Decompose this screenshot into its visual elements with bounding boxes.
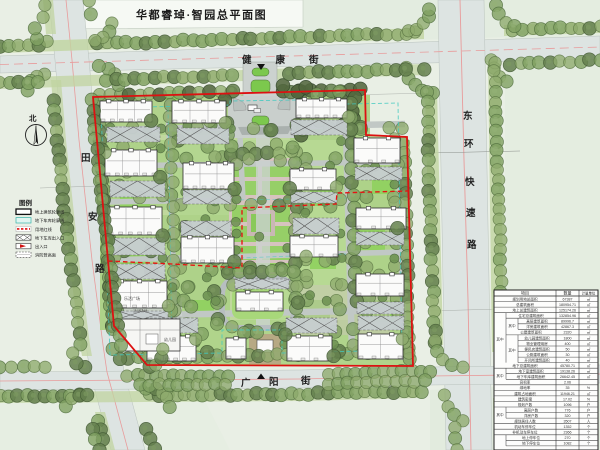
svg-text:其中: 其中 [496, 336, 504, 341]
svg-text:2366: 2366 [564, 431, 572, 435]
svg-text:活动场地: 活动场地 [133, 308, 148, 313]
svg-text:图例: 图例 [19, 198, 33, 207]
svg-text:健康街: 健康街 [242, 54, 343, 66]
svg-text:用地红线: 用地红线 [35, 226, 53, 233]
svg-text:洋房户数: 洋房户数 [524, 413, 539, 418]
svg-text:住宅总建筑面积: 住宅总建筑面积 [518, 313, 544, 318]
svg-text:高层户数: 高层户数 [524, 407, 539, 412]
svg-text:个: 个 [587, 430, 591, 435]
svg-text:270: 270 [565, 436, 571, 440]
svg-text:㎡: ㎡ [587, 341, 591, 346]
svg-text:50: 50 [566, 347, 570, 351]
svg-text:1082: 1082 [564, 442, 572, 446]
svg-text:19138.26: 19138.26 [560, 370, 575, 374]
svg-text:45780.71: 45780.71 [560, 364, 575, 368]
svg-text:路: 路 [467, 239, 477, 251]
svg-text:计量单位: 计量单位 [582, 291, 596, 296]
svg-text:17.02: 17.02 [563, 397, 572, 401]
svg-text:地下车库轮廓线: 地下车库轮廓线 [35, 217, 65, 224]
svg-text:35: 35 [566, 386, 570, 390]
svg-text:广: 广 [241, 377, 251, 389]
svg-text:容积率: 容积率 [520, 380, 531, 385]
svg-text:400: 400 [565, 342, 571, 346]
svg-text:㎡: ㎡ [587, 374, 591, 379]
svg-text:11946.21: 11946.21 [560, 392, 575, 396]
svg-text:建筑密度: 建筑密度 [518, 396, 533, 401]
svg-text:2.06: 2.06 [564, 381, 571, 385]
svg-text:田: 田 [81, 153, 91, 164]
svg-text:㎡: ㎡ [587, 324, 591, 329]
svg-text:其中: 其中 [508, 323, 516, 328]
svg-text:㎡: ㎡ [587, 330, 591, 335]
svg-text:户: 户 [587, 413, 591, 418]
svg-text:26642.45: 26642.45 [560, 375, 575, 379]
svg-text:㎡: ㎡ [587, 335, 591, 340]
svg-text:建筑占地面积: 建筑占地面积 [514, 391, 536, 396]
svg-text:速: 速 [466, 207, 476, 219]
svg-text:㎡: ㎡ [587, 369, 591, 374]
svg-text:㎡: ㎡ [587, 319, 591, 324]
svg-text:幼儿园: 幼儿园 [164, 336, 176, 342]
svg-text:其中: 其中 [496, 412, 504, 417]
svg-text:公建建筑面积: 公建建筑面积 [520, 330, 542, 335]
svg-text:华都睿琸·智园总平面图: 华都睿琸·智园总平面图 [136, 8, 267, 22]
svg-text:地下总建筑面积: 地下总建筑面积 [512, 363, 538, 368]
svg-text:个: 个 [587, 435, 591, 440]
svg-text:规划用地总面积: 规划用地总面积 [512, 296, 538, 301]
svg-text:规划户数: 规划户数 [518, 402, 533, 407]
svg-text:户: 户 [587, 402, 591, 407]
svg-text:地下车库建筑面积: 地下车库建筑面积 [517, 374, 546, 379]
svg-text:其中: 其中 [496, 373, 504, 378]
svg-text:总建筑面积: 总建筑面积 [516, 302, 534, 307]
svg-text:开闭所建筑面积: 开闭所建筑面积 [524, 358, 550, 363]
svg-text:人: 人 [587, 419, 591, 424]
svg-text:路: 路 [95, 263, 105, 275]
svg-text:40: 40 [566, 359, 570, 363]
svg-text:户: 户 [587, 407, 591, 412]
svg-text:绿地率: 绿地率 [520, 385, 531, 390]
svg-text:㎡: ㎡ [587, 391, 591, 396]
svg-text:消防登高面: 消防登高面 [35, 252, 56, 259]
svg-text:个: 个 [587, 441, 591, 446]
svg-text:㎡: ㎡ [587, 346, 591, 351]
svg-text:125174.26: 125174.26 [559, 309, 576, 313]
svg-text:地下停车位: 地下停车位 [522, 441, 540, 446]
svg-text:出入口: 出入口 [35, 243, 48, 250]
svg-text:地上建筑轮廓线: 地上建筑轮廓线 [35, 209, 65, 216]
svg-text:其中: 其中 [508, 348, 516, 353]
svg-text:规划居住人数: 规划居住人数 [514, 419, 536, 424]
svg-text:3507: 3507 [564, 420, 572, 424]
svg-text:776: 776 [565, 408, 571, 412]
svg-text:北: 北 [29, 113, 37, 123]
svg-text:㎡: ㎡ [587, 296, 591, 301]
svg-text:物业管理用房: 物业管理用房 [526, 341, 548, 346]
svg-text:个: 个 [587, 424, 591, 429]
svg-text:㎡: ㎡ [587, 363, 591, 368]
svg-text:㎡: ㎡ [587, 302, 591, 307]
svg-text:公厕建筑面积: 公厕建筑面积 [526, 352, 548, 357]
svg-text:67387: 67387 [563, 297, 573, 301]
svg-text:洋房建筑面积: 洋房建筑面积 [526, 324, 548, 329]
svg-text:地下车库出入口: 地下车库出入口 [35, 234, 64, 241]
svg-text:1096: 1096 [564, 403, 572, 407]
svg-text:㎡: ㎡ [587, 308, 591, 313]
svg-text:街: 街 [300, 375, 311, 387]
svg-text:2320: 2320 [564, 331, 572, 335]
svg-text:阳: 阳 [269, 377, 279, 388]
svg-text:㎡: ㎡ [587, 352, 591, 357]
svg-text:乐活广场: 乐活广场 [124, 295, 140, 301]
svg-text:安: 安 [88, 211, 98, 223]
svg-text:89996.7: 89996.7 [561, 320, 574, 324]
svg-text:机动车停车位: 机动车停车位 [514, 424, 536, 429]
svg-text:幼儿园建筑面积: 幼儿园建筑面积 [524, 335, 550, 340]
svg-text:㎡: ㎡ [587, 313, 591, 318]
svg-text:㎡: ㎡ [587, 358, 591, 363]
svg-text:便民店建筑面积: 便民店建筑面积 [524, 346, 550, 351]
svg-text:环: 环 [464, 139, 474, 150]
svg-text:地上总建筑面积: 地上总建筑面积 [512, 308, 538, 313]
svg-text:1352: 1352 [564, 425, 572, 429]
svg-text:东: 东 [463, 110, 473, 122]
svg-text:地上停车位: 地上停车位 [522, 435, 540, 440]
svg-text:1800: 1800 [564, 336, 572, 340]
svg-text:快: 快 [465, 176, 475, 188]
svg-text:132854.96: 132854.96 [559, 314, 576, 318]
svg-text:项目: 项目 [521, 290, 529, 296]
svg-text:高层建筑面积: 高层建筑面积 [526, 319, 548, 324]
svg-text:320: 320 [565, 414, 571, 418]
svg-text:数量: 数量 [564, 290, 572, 296]
svg-text:30: 30 [566, 353, 570, 357]
svg-text:42867.3: 42867.3 [561, 325, 574, 329]
svg-text:180954.71: 180954.71 [559, 303, 576, 307]
svg-text:非机动车停车位: 非机动车停车位 [512, 430, 538, 435]
svg-text:地下室建筑面积: 地下室建筑面积 [518, 369, 544, 374]
